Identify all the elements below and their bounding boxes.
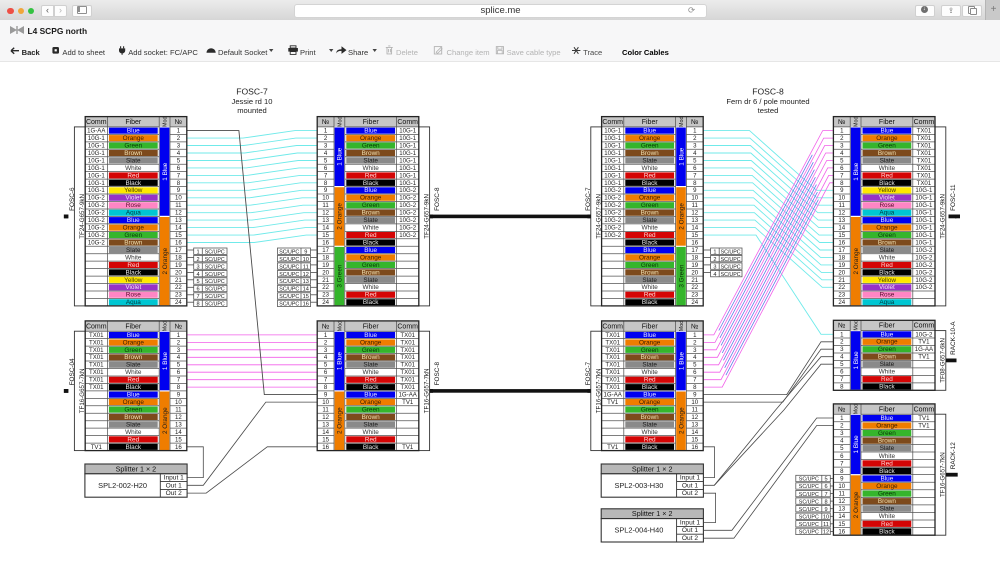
svg-text:Fiber: Fiber [879, 119, 896, 126]
svg-text:TF24-G657-9kN: TF24-G657-9kN [940, 194, 947, 239]
svg-text:Brown: Brown [124, 150, 143, 157]
svg-text:White: White [642, 284, 659, 291]
svg-text:10: 10 [823, 515, 829, 521]
svg-text:10G-1: 10G-1 [915, 187, 933, 194]
svg-text:10G-1: 10G-1 [399, 172, 417, 179]
svg-text:Aqua: Aqua [879, 210, 894, 217]
svg-text:13: 13 [303, 279, 309, 285]
svg-text:10G-1: 10G-1 [915, 217, 933, 224]
svg-text:Black: Black [879, 528, 895, 535]
svg-text:10G-1: 10G-1 [88, 150, 106, 157]
svg-text:TX01: TX01 [400, 332, 415, 339]
svg-text:2: 2 [713, 257, 716, 263]
svg-text:TX01: TX01 [917, 128, 932, 135]
svg-text:23: 23 [175, 292, 182, 299]
svg-text:Comm: Comm [602, 323, 623, 330]
svg-text:Blue: Blue [643, 332, 656, 339]
svg-text:Blue: Blue [881, 475, 894, 482]
svg-text:22: 22 [838, 284, 845, 291]
svg-text:White: White [363, 284, 380, 291]
svg-text:Black: Black [879, 180, 895, 187]
svg-text:SC/UPC: SC/UPC [799, 522, 819, 528]
svg-text:Slate: Slate [363, 421, 378, 428]
svg-text:Out 2: Out 2 [682, 535, 698, 542]
svg-text:№: № [175, 323, 183, 330]
svg-text:TX01: TX01 [400, 354, 415, 361]
svg-text:SPL2-004-H40: SPL2-004-H40 [614, 526, 663, 535]
svg-text:Blue: Blue [127, 332, 140, 339]
svg-text:Orange: Orange [639, 399, 661, 406]
svg-text:TV1: TV1 [91, 444, 103, 451]
svg-text:White: White [125, 254, 142, 261]
svg-text:19: 19 [838, 262, 845, 269]
svg-text:Violet: Violet [879, 195, 895, 202]
svg-text:10G-1: 10G-1 [399, 143, 417, 150]
svg-text:Mod: Mod [853, 117, 859, 128]
svg-text:TF08-G657-6kN: TF08-G657-6kN [940, 338, 947, 383]
svg-text:SC/UPC: SC/UPC [205, 279, 225, 285]
svg-text:10G-1: 10G-1 [88, 187, 106, 194]
svg-text:12: 12 [823, 530, 829, 536]
svg-text:10G-2: 10G-2 [915, 284, 933, 291]
svg-text:4: 4 [196, 272, 199, 278]
svg-text:10G-1: 10G-1 [399, 157, 417, 164]
svg-text:22: 22 [175, 284, 182, 291]
svg-text:Orange: Orange [639, 195, 661, 202]
svg-text:Comm: Comm [914, 119, 935, 126]
svg-text:13: 13 [691, 217, 698, 224]
svg-text:11: 11 [175, 407, 182, 414]
svg-text:Aqua: Aqua [126, 299, 141, 306]
svg-text:Blue: Blue [881, 217, 894, 224]
svg-text:White: White [125, 429, 142, 436]
svg-text:7: 7 [177, 172, 181, 179]
svg-text:White: White [879, 369, 896, 376]
svg-text:4: 4 [177, 354, 181, 361]
svg-text:10G-2: 10G-2 [88, 240, 106, 247]
svg-text:SC/UPC: SC/UPC [279, 249, 299, 255]
svg-text:1 Blue: 1 Blue [162, 162, 169, 181]
svg-text:White: White [642, 429, 659, 436]
svg-text:Red: Red [365, 292, 377, 299]
svg-text:12: 12 [838, 210, 845, 217]
svg-text:SC/UPC: SC/UPC [205, 294, 225, 300]
svg-text:Fern dr 6 / pole mounted: Fern dr 6 / pole mounted [726, 97, 809, 106]
svg-text:16: 16 [838, 528, 845, 535]
svg-text:12: 12 [838, 498, 845, 505]
svg-text:TX01: TX01 [917, 157, 932, 164]
svg-text:Yellow: Yellow [124, 187, 143, 194]
svg-text:Slate: Slate [126, 421, 141, 428]
svg-text:13: 13 [838, 217, 845, 224]
svg-text:16: 16 [303, 302, 309, 308]
svg-text:Brown: Brown [878, 354, 897, 361]
svg-text:Orange: Orange [123, 225, 145, 232]
svg-text:Red: Red [644, 172, 656, 179]
svg-text:14: 14 [691, 225, 698, 232]
svg-text:SC/UPC: SC/UPC [279, 272, 299, 278]
svg-text:3 Green: 3 Green [678, 264, 685, 288]
svg-text:2 Orange: 2 Orange [678, 203, 685, 230]
svg-text:Red: Red [365, 377, 377, 384]
svg-text:Blue: Blue [127, 217, 140, 224]
svg-text:Input 1: Input 1 [164, 475, 184, 482]
svg-text:Slate: Slate [126, 362, 141, 369]
svg-text:№: № [838, 406, 846, 413]
svg-text:6: 6 [196, 287, 199, 293]
svg-text:Slate: Slate [642, 421, 657, 428]
svg-text:TV1: TV1 [918, 354, 930, 361]
svg-text:14: 14 [303, 287, 309, 293]
svg-text:10G-1: 10G-1 [604, 157, 622, 164]
svg-text:SC/UPC: SC/UPC [721, 272, 741, 278]
svg-text:21: 21 [175, 277, 182, 284]
svg-text:Green: Green [124, 143, 142, 150]
svg-text:TX01: TX01 [400, 384, 415, 391]
svg-text:TX01: TX01 [917, 135, 932, 142]
svg-text:Comm: Comm [86, 119, 107, 126]
svg-text:10: 10 [838, 483, 845, 490]
svg-text:Red: Red [127, 262, 139, 269]
svg-text:Brown: Brown [641, 150, 660, 157]
svg-text:Brown: Brown [878, 438, 897, 445]
svg-text:№: № [691, 119, 699, 126]
svg-text:20: 20 [175, 269, 182, 276]
svg-text:Out 1: Out 1 [682, 482, 698, 489]
svg-text:Slate: Slate [363, 217, 378, 224]
svg-text:10G-2: 10G-2 [915, 262, 933, 269]
svg-text:6: 6 [177, 165, 181, 172]
svg-text:Red: Red [365, 172, 377, 179]
svg-text:18: 18 [322, 254, 329, 261]
svg-text:TX01: TX01 [605, 332, 620, 339]
svg-text:2 Orange: 2 Orange [162, 247, 169, 274]
svg-text:10G-2: 10G-2 [399, 210, 417, 217]
svg-text:1 Blue: 1 Blue [853, 351, 860, 370]
svg-text:9: 9 [304, 249, 307, 255]
svg-text:№: № [322, 323, 330, 330]
svg-text:TX01: TX01 [605, 339, 620, 346]
svg-text:TV1: TV1 [402, 444, 414, 451]
svg-text:9: 9 [177, 187, 181, 194]
svg-text:TX01: TX01 [917, 180, 932, 187]
svg-text:24: 24 [838, 299, 845, 306]
svg-text:11: 11 [823, 522, 829, 528]
svg-text:SPL2-003-H30: SPL2-003-H30 [614, 481, 663, 490]
svg-text:Black: Black [363, 444, 379, 451]
svg-text:FOSC-11: FOSC-11 [950, 184, 957, 211]
svg-text:10: 10 [838, 195, 845, 202]
svg-text:10G-2: 10G-2 [604, 210, 622, 217]
svg-text:10G-1: 10G-1 [915, 225, 933, 232]
svg-text:Green: Green [362, 143, 380, 150]
svg-text:Green: Green [878, 346, 896, 353]
svg-text:1 Blue: 1 Blue [337, 147, 344, 166]
svg-text:Black: Black [879, 468, 895, 475]
svg-text:Fiber: Fiber [879, 406, 896, 413]
svg-text:1G-AA: 1G-AA [399, 392, 418, 399]
svg-text:SC/UPC: SC/UPC [721, 264, 741, 270]
svg-text:Comm: Comm [914, 406, 935, 413]
svg-text:Green: Green [878, 143, 896, 150]
svg-text:TX01: TX01 [400, 362, 415, 369]
svg-text:Orange: Orange [360, 195, 382, 202]
svg-text:SC/UPC: SC/UPC [799, 492, 819, 498]
svg-text:White: White [363, 429, 380, 436]
svg-text:Yellow: Yellow [878, 277, 897, 284]
svg-text:FOSC-8: FOSC-8 [752, 87, 784, 97]
svg-text:14: 14 [322, 429, 329, 436]
svg-text:15: 15 [175, 436, 182, 443]
svg-text:SC/UPC: SC/UPC [799, 530, 819, 536]
svg-text:SC/UPC: SC/UPC [205, 302, 225, 308]
svg-text:Red: Red [644, 292, 656, 299]
svg-text:Mod: Mod [679, 117, 685, 128]
svg-text:20: 20 [691, 269, 698, 276]
svg-text:5: 5 [177, 157, 181, 164]
svg-text:10G-1: 10G-1 [604, 143, 622, 150]
svg-text:21: 21 [838, 277, 845, 284]
svg-text:№: № [175, 119, 183, 126]
svg-text:Slate: Slate [642, 217, 657, 224]
svg-text:16: 16 [322, 444, 329, 451]
svg-text:Mod: Mod [337, 321, 343, 332]
svg-text:Brown: Brown [362, 210, 381, 217]
svg-text:1G-AA: 1G-AA [604, 392, 623, 399]
svg-text:13: 13 [322, 217, 329, 224]
svg-text:Red: Red [644, 436, 656, 443]
svg-text:RACK-10-A: RACK-10-A [950, 321, 957, 355]
svg-text:Orange: Orange [360, 135, 382, 142]
svg-text:Black: Black [642, 299, 658, 306]
svg-text:2 Orange: 2 Orange [853, 491, 860, 518]
svg-text:19: 19 [322, 262, 329, 269]
svg-text:10G-2: 10G-2 [399, 202, 417, 209]
svg-text:10G-1: 10G-1 [88, 172, 106, 179]
svg-text:SC/UPC: SC/UPC [205, 287, 225, 293]
svg-text:Jessie rd 10: Jessie rd 10 [232, 97, 273, 106]
svg-text:Slate: Slate [363, 277, 378, 284]
svg-text:TX01: TX01 [605, 377, 620, 384]
svg-text:22: 22 [322, 284, 329, 291]
svg-text:23: 23 [838, 292, 845, 299]
svg-text:1: 1 [177, 332, 181, 339]
svg-text:TV1: TV1 [918, 423, 930, 430]
svg-text:10: 10 [303, 257, 309, 263]
svg-text:Slate: Slate [126, 157, 141, 164]
svg-text:Out 2: Out 2 [682, 490, 698, 497]
svg-text:Violet: Violet [879, 284, 895, 291]
svg-text:15: 15 [691, 436, 698, 443]
svg-text:SC/UPC: SC/UPC [205, 257, 225, 263]
svg-text:10G-2: 10G-2 [88, 210, 106, 217]
svg-text:15: 15 [838, 521, 845, 528]
svg-text:Red: Red [881, 262, 893, 269]
svg-text:16: 16 [838, 240, 845, 247]
svg-text:Blue: Blue [881, 331, 894, 338]
svg-text:10: 10 [322, 195, 329, 202]
svg-text:19: 19 [691, 262, 698, 269]
svg-text:Black: Black [125, 269, 141, 276]
svg-text:5: 5 [196, 279, 199, 285]
svg-text:21: 21 [322, 277, 329, 284]
svg-text:Brown: Brown [124, 354, 143, 361]
svg-text:SC/UPC: SC/UPC [205, 249, 225, 255]
svg-text:TV1: TV1 [607, 444, 619, 451]
svg-text:Black: Black [363, 240, 379, 247]
svg-text:2: 2 [177, 135, 181, 142]
svg-text:Orange: Orange [123, 399, 145, 406]
svg-text:TX01: TX01 [605, 347, 620, 354]
svg-text:10: 10 [691, 399, 698, 406]
svg-text:10G-2: 10G-2 [915, 331, 933, 338]
svg-text:1 Blue: 1 Blue [337, 351, 344, 370]
svg-text:10G-1: 10G-1 [915, 195, 933, 202]
svg-text:FOSC-7: FOSC-7 [585, 362, 592, 386]
svg-text:Orange: Orange [123, 135, 145, 142]
svg-text:Green: Green [641, 262, 659, 269]
svg-text:13: 13 [175, 421, 182, 428]
svg-text:White: White [879, 254, 896, 261]
svg-text:Input 1: Input 1 [680, 475, 700, 482]
svg-text:Black: Black [879, 269, 895, 276]
svg-text:Slate: Slate [880, 445, 895, 452]
svg-text:10G-1: 10G-1 [399, 180, 417, 187]
svg-text:12: 12 [322, 414, 329, 421]
svg-text:10G-2: 10G-2 [915, 254, 933, 261]
svg-text:TF16-G657-7kN: TF16-G657-7kN [423, 369, 430, 414]
svg-text:tested: tested [758, 106, 779, 115]
svg-text:23: 23 [322, 292, 329, 299]
svg-text:Blue: Blue [643, 392, 656, 399]
svg-text:Black: Black [879, 384, 895, 391]
svg-text:Fiber: Fiber [363, 323, 380, 330]
svg-text:Yellow: Yellow [878, 187, 897, 194]
svg-text:TX01: TX01 [917, 165, 932, 172]
svg-text:10G-1: 10G-1 [915, 210, 933, 217]
svg-text:Comm: Comm [914, 323, 935, 330]
svg-text:Red: Red [127, 172, 139, 179]
svg-text:Blue: Blue [127, 128, 140, 135]
svg-text:Red: Red [127, 436, 139, 443]
svg-text:1: 1 [196, 249, 199, 255]
svg-text:10: 10 [175, 399, 182, 406]
svg-text:10G-1: 10G-1 [88, 165, 106, 172]
svg-text:2 Orange: 2 Orange [162, 407, 169, 434]
svg-text:Orange: Orange [639, 339, 661, 346]
svg-text:Brown: Brown [362, 354, 381, 361]
svg-text:17: 17 [691, 247, 698, 254]
svg-text:Green: Green [362, 347, 380, 354]
svg-text:Slate: Slate [642, 157, 657, 164]
svg-text:10G-1: 10G-1 [399, 135, 417, 142]
svg-text:Green: Green [641, 407, 659, 414]
svg-text:6: 6 [824, 484, 827, 490]
svg-text:Red: Red [365, 436, 377, 443]
svg-text:10G-1: 10G-1 [915, 202, 933, 209]
svg-text:Comm: Comm [397, 119, 418, 126]
svg-text:24: 24 [175, 299, 182, 306]
svg-text:16: 16 [175, 240, 182, 247]
svg-text:1: 1 [713, 249, 716, 255]
svg-text:TX01: TX01 [917, 143, 932, 150]
svg-text:Green: Green [878, 232, 896, 239]
svg-text:10G-2: 10G-2 [399, 225, 417, 232]
svg-text:2 Orange: 2 Orange [853, 247, 860, 274]
svg-text:23: 23 [691, 292, 698, 299]
svg-text:Comm: Comm [602, 119, 623, 126]
svg-text:TX01: TX01 [400, 339, 415, 346]
svg-text:10G-2: 10G-2 [604, 217, 622, 224]
svg-text:Fiber: Fiber [363, 119, 380, 126]
svg-text:2 Orange: 2 Orange [678, 407, 685, 434]
svg-text:TX01: TX01 [89, 369, 104, 376]
svg-text:Rose: Rose [879, 292, 894, 299]
svg-text:Orange: Orange [360, 254, 382, 261]
svg-text:Blue: Blue [643, 247, 656, 254]
svg-text:Orange: Orange [876, 135, 898, 142]
svg-text:18: 18 [838, 254, 845, 261]
svg-text:SC/UPC: SC/UPC [279, 294, 299, 300]
svg-text:Green: Green [878, 491, 896, 498]
svg-text:1 Blue: 1 Blue [853, 435, 860, 454]
svg-text:Yellow: Yellow [124, 277, 143, 284]
svg-text:Blue: Blue [364, 187, 377, 194]
svg-text:3: 3 [196, 264, 199, 270]
svg-text:12: 12 [691, 210, 698, 217]
svg-text:2 Orange: 2 Orange [337, 203, 344, 230]
svg-text:13: 13 [691, 421, 698, 428]
svg-text:Fiber: Fiber [642, 119, 659, 126]
svg-text:1G-AA: 1G-AA [87, 128, 106, 135]
svg-text:Black: Black [642, 180, 658, 187]
svg-text:Slate: Slate [880, 157, 895, 164]
svg-text:10G-2: 10G-2 [399, 187, 417, 194]
svg-text:12: 12 [322, 210, 329, 217]
svg-text:Slate: Slate [642, 362, 657, 369]
svg-text:FOSC-6: FOSC-6 [69, 187, 76, 211]
svg-text:1 Blue: 1 Blue [678, 351, 685, 370]
svg-text:Green: Green [362, 407, 380, 414]
svg-text:Black: Black [642, 444, 658, 451]
svg-text:Brown: Brown [362, 414, 381, 421]
svg-text:Aqua: Aqua [126, 210, 141, 217]
svg-text:18: 18 [691, 254, 698, 261]
svg-text:Orange: Orange [639, 135, 661, 142]
svg-text:White: White [125, 369, 142, 376]
svg-text:1 Blue: 1 Blue [853, 162, 860, 181]
svg-text:Splitter 1 × 2: Splitter 1 × 2 [632, 464, 673, 473]
svg-text:10G-1: 10G-1 [604, 172, 622, 179]
svg-text:1 Blue: 1 Blue [678, 147, 685, 166]
svg-text:Brown: Brown [641, 354, 660, 361]
svg-text:SC/UPC: SC/UPC [205, 272, 225, 278]
svg-text:10G-2: 10G-2 [399, 217, 417, 224]
svg-text:10G-2: 10G-2 [88, 195, 106, 202]
svg-text:Mod: Mod [337, 117, 343, 128]
svg-text:SC/UPC: SC/UPC [799, 507, 819, 513]
svg-text:White: White [879, 453, 896, 460]
svg-text:Brown: Brown [641, 414, 660, 421]
svg-text:14: 14 [175, 429, 182, 436]
svg-text:15: 15 [175, 232, 182, 239]
svg-text:14: 14 [175, 225, 182, 232]
svg-text:10G-1: 10G-1 [88, 135, 106, 142]
svg-text:16: 16 [691, 444, 698, 451]
svg-text:Splitter 1 × 2: Splitter 1 × 2 [116, 464, 157, 473]
svg-text:10G-1: 10G-1 [604, 128, 622, 135]
svg-text:TF16-G657-7kN: TF16-G657-7kN [940, 452, 947, 497]
